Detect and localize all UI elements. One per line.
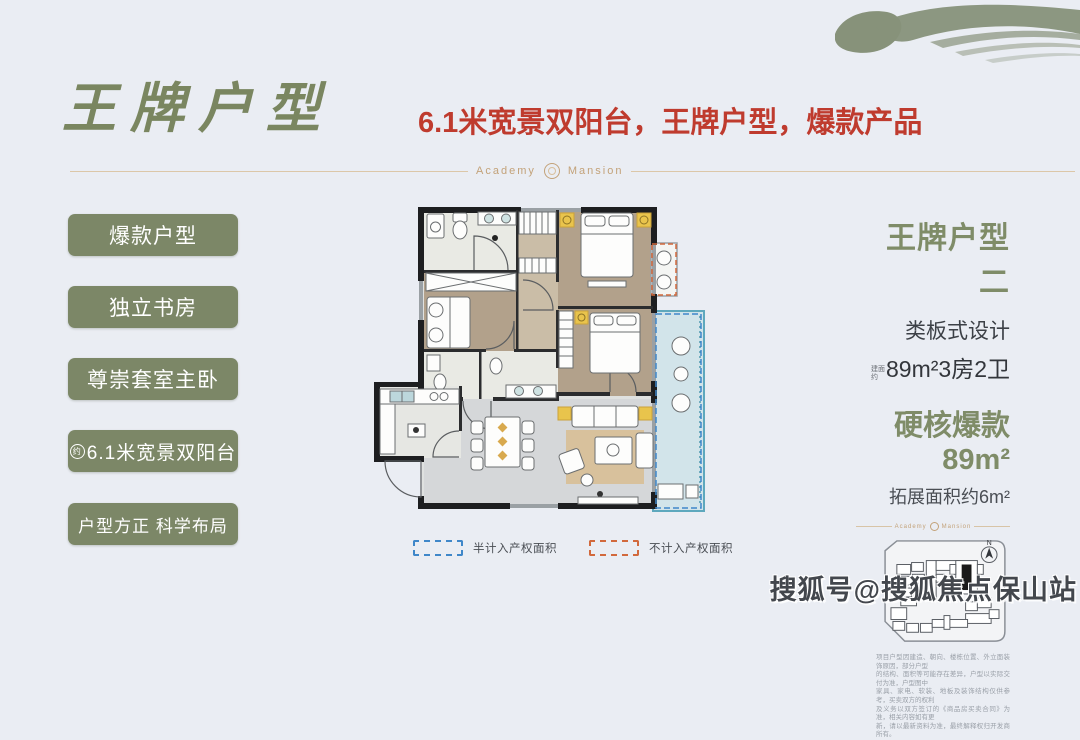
brush-stroke-decoration xyxy=(835,0,1080,75)
disclaimer-line: 的结构、面积等可能存在差异，户型以实际交付为准，户型图中 xyxy=(876,671,1010,688)
unit-name: 王牌户型二 xyxy=(856,213,1010,301)
floor-plan-legend: 半计入产权面积 不计入产权面积 xyxy=(413,540,733,556)
brand-academy-label: Academy xyxy=(895,524,927,530)
sidebar-item-label: 尊崇套室主卧 xyxy=(87,364,219,394)
sidebar-item-label: 爆款户型 xyxy=(109,220,197,250)
unit-details-panel: 王牌户型二 类板式设计 建面约 89m²3房2卫 硬核爆款89m² 拓展面积约6… xyxy=(856,213,1010,740)
brand-seal-icon xyxy=(544,163,560,179)
area-prefix-label: 建面约 xyxy=(871,366,886,381)
brand-divider: Academy Mansion xyxy=(70,163,1075,179)
sidebar-item-label: 户型方正 科学布局 xyxy=(78,512,228,537)
brand-seal-icon xyxy=(930,522,939,531)
brand-mansion-label: Mansion xyxy=(942,524,972,530)
sidebar-item-study: 独立书房 xyxy=(68,286,238,328)
compass-north-label: N xyxy=(987,540,992,547)
sidebar-item-double-balcony: 约 6.1米宽景双阳台 xyxy=(68,430,238,472)
brand-mansion-label: Mansion xyxy=(568,165,624,177)
page-subtitle: 6.1米宽景双阳台，王牌户型，爆款产品 xyxy=(418,99,922,141)
disclaimer-text: 项目户型因建造、朝向、楼栋位置、外立面装饰原因，部分户型 的结构、面积等可能存在… xyxy=(876,654,1010,740)
sidebar-item-label: 独立书房 xyxy=(109,292,197,322)
unit-area-rooms: 89m²3房2卫 xyxy=(886,350,1010,384)
divider-line xyxy=(974,526,1010,527)
legend-label-half-counted: 半计入产权面积 xyxy=(473,540,557,556)
sidebar-item-square-layout: 户型方正 科学布局 xyxy=(68,503,238,545)
disclaimer-line: 新，请以最新资料为准，最终解释权归开发商所有。 xyxy=(876,723,1010,740)
legend-label-not-counted: 不计入产权面积 xyxy=(649,540,733,556)
divider-line xyxy=(70,171,468,172)
legend-orange-dashed-swatch xyxy=(589,540,639,556)
poster-canvas: 王牌户型 6.1米宽景双阳台，王牌户型，爆款产品 Academy Mansion… xyxy=(0,0,1080,608)
sidebar-item-hot-layout: 爆款户型 xyxy=(68,214,238,256)
sidebar-item-master-suite: 尊崇套室主卧 xyxy=(68,358,238,400)
brand-academy-label: Academy xyxy=(476,165,536,177)
disclaimer-line: 及义务以双方签订的《商品房买卖合同》为准，相关内容如有更 xyxy=(876,706,1010,723)
unit-design-type: 类板式设计 xyxy=(856,315,1010,345)
unit-highlight: 硬核爆款89m² xyxy=(856,402,1010,477)
unit-expand-area: 拓展面积约6m² xyxy=(856,483,1010,509)
approx-circle-icon: 约 xyxy=(70,444,85,459)
floor-plan xyxy=(368,196,716,537)
divider-line xyxy=(856,526,892,527)
legend-blue-dashed-swatch xyxy=(413,540,463,556)
watermark: 搜狐号@搜狐焦点保山站 xyxy=(770,568,1077,607)
mini-brand-divider: Academy Mansion xyxy=(856,522,1010,531)
page-title: 王牌户型 xyxy=(62,64,334,143)
divider-line xyxy=(631,171,1075,172)
sidebar-item-label: 6.1米宽景双阳台 xyxy=(87,438,236,465)
disclaimer-line: 项目户型因建造、朝向、楼栋位置、外立面装饰原因，部分户型 xyxy=(876,654,1010,671)
disclaimer-line: 家具、家电、软装、地板及装饰结构仅供参考，买卖双方的权利 xyxy=(876,688,1010,705)
